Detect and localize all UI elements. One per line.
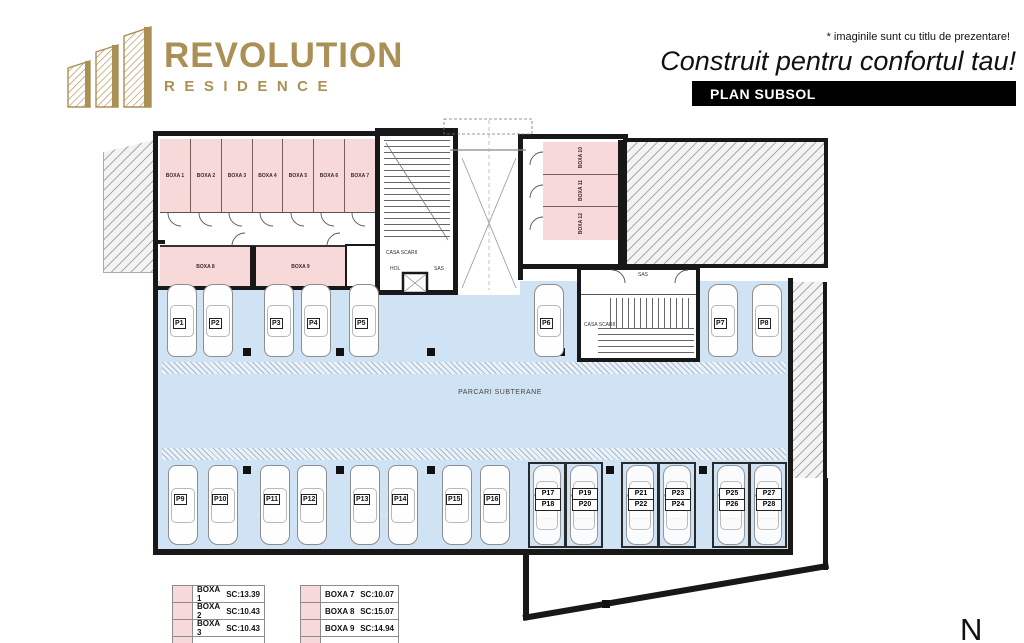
- small-room: [345, 244, 378, 288]
- room-boxa-9: BOXA 9: [256, 247, 345, 286]
- stairs-right-treads-upper: [610, 298, 694, 328]
- car-icon: [168, 465, 198, 545]
- parking-spot-p8: P8: [758, 318, 771, 329]
- car-ramp: [458, 118, 520, 295]
- legend-table-right: BOXA 7SC:10.07 BOXA 8SC:15.07 BOXA 9SC:1…: [300, 586, 399, 643]
- stairs-left-treads: [384, 140, 450, 242]
- stairwell-left-label: CASA SCARII: [386, 250, 417, 256]
- parking-spot-p6: P6: [540, 318, 553, 329]
- legend-row: [172, 636, 265, 643]
- legend-row: BOXA 8SC:15.07: [300, 602, 399, 620]
- parking-area-label: PARCARI SUBTERANE: [420, 389, 580, 396]
- walkway-stripe-top: [162, 362, 786, 374]
- legend-swatch: [172, 636, 193, 643]
- room-boxa-1: BOXA 1: [160, 139, 191, 212]
- room-boxa-3: BOXA 3: [222, 139, 253, 212]
- parking-spot-p14: P14: [392, 494, 408, 505]
- room-boxa-5: BOXA 5: [283, 139, 314, 212]
- stairwell-right-label: CASA SCARII: [584, 322, 615, 328]
- floor-plan-page: REVOLUTION RESIDENCE * imaginile sunt cu…: [0, 0, 1024, 643]
- car-icon: [388, 465, 418, 545]
- parking-spot-p27-p28: P27 P28: [756, 488, 782, 511]
- car-icon: [208, 465, 238, 545]
- legend-swatch: [300, 602, 321, 620]
- parking-spot-p3: P3: [270, 318, 283, 329]
- parking-spot-p12: P12: [301, 494, 317, 505]
- parking-spot-p2: P2: [209, 318, 222, 329]
- hol-label: HOL: [390, 266, 400, 272]
- room-boxa-11: BOXA 11: [543, 175, 618, 207]
- parking-spot-p11: P11: [264, 494, 280, 505]
- legend-row: BOXA 9SC:14.94: [300, 619, 399, 637]
- legend-swatch: [300, 585, 321, 603]
- walkway-stripe-bottom: [162, 448, 786, 460]
- parking-spot-p19-p20: P19 P20: [572, 488, 598, 511]
- legend-swatch: [300, 636, 321, 643]
- legend-row: BOXA 1SC:13.39: [172, 585, 265, 603]
- north-indicator: N: [960, 612, 982, 643]
- parking-spot-p10: P10: [212, 494, 228, 505]
- legend-row: [300, 636, 399, 643]
- parking-spot-p5: P5: [355, 318, 368, 329]
- room-boxa-8: BOXA 8: [160, 247, 251, 286]
- parking-spot-p15: P15: [446, 494, 462, 505]
- car-icon: [480, 465, 510, 545]
- parking-spot-p4: P4: [307, 318, 320, 329]
- car-icon: [297, 465, 327, 545]
- room-boxa-12: BOXA 12: [543, 207, 618, 240]
- legend-swatch: [172, 619, 193, 637]
- floor-plan: PARCARI SUBTERANE BOXA 1 BOXA 2 BOXA 3 B…: [0, 0, 1024, 643]
- parking-spot-p1: P1: [173, 318, 186, 329]
- unexcavated-hatch-block: [623, 138, 828, 268]
- parking-spot-p9: P9: [174, 494, 187, 505]
- stairs-right-treads-lower: [598, 328, 694, 356]
- room-boxa-2: BOXA 2: [191, 139, 222, 212]
- legend-swatch: [300, 619, 321, 637]
- parking-spot-p23-p24: P23 P24: [665, 488, 691, 511]
- room-boxa-10: BOXA 10: [543, 142, 618, 175]
- exterior-hatch-right: [793, 282, 827, 478]
- car-icon: [350, 465, 380, 545]
- room-boxa-6: BOXA 6: [314, 139, 345, 212]
- parking-spot-p25-p26: P25 P26: [719, 488, 745, 511]
- car-icon: [260, 465, 290, 545]
- parking-spot-p21-p22: P21 P22: [628, 488, 654, 511]
- parking-spot-p7: P7: [714, 318, 727, 329]
- exterior-hatch-left: [103, 139, 157, 273]
- legend-row: BOXA 3SC:10.43: [172, 619, 265, 637]
- legend-row: BOXA 2SC:10.43: [172, 602, 265, 620]
- legend-row: BOXA 7SC:10.07: [300, 585, 399, 603]
- room-boxa-4: BOXA 4: [253, 139, 283, 212]
- sas-left-label: SAS: [434, 266, 444, 272]
- legend-table-left: BOXA 1SC:13.39 BOXA 2SC:10.43 BOXA 3SC:1…: [172, 586, 265, 643]
- room-boxa-7: BOXA 7: [345, 139, 375, 212]
- parking-spot-p16: P16: [484, 494, 500, 505]
- legend-swatch: [172, 585, 193, 603]
- car-icon: [442, 465, 472, 545]
- sas-right-label: SAS: [638, 272, 648, 278]
- parking-spot-p17-p18: P17 P18: [535, 488, 561, 511]
- legend-swatch: [172, 602, 193, 620]
- parking-spot-p13: P13: [354, 494, 370, 505]
